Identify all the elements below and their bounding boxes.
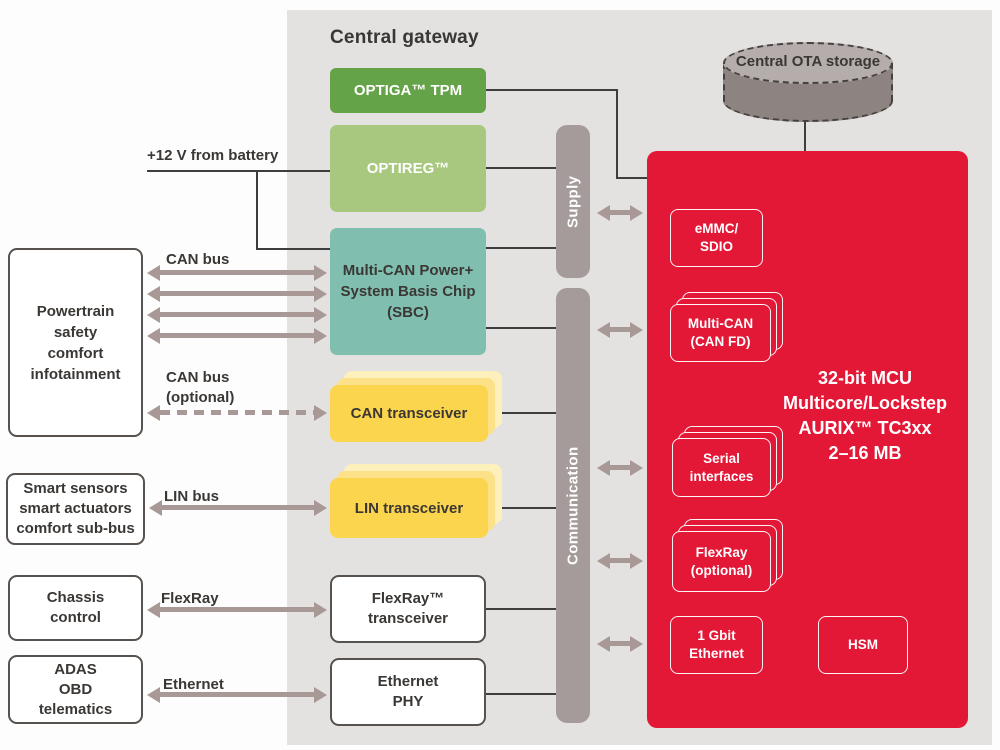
adas-node: ADAS OBD telematics (8, 655, 143, 724)
optireg-label: OPTIREG™ (367, 159, 450, 179)
serial-interfaces-label: Serial interfaces (690, 450, 754, 486)
central-ota-storage: Central OTA storage (723, 42, 893, 122)
chassis-label: Chassis control (47, 588, 105, 628)
connector-optiga-v (616, 89, 618, 179)
hsm-label: HSM (848, 636, 878, 654)
can-bus-arrow-2 (160, 291, 314, 296)
multi-can-label: Multi-CAN (CAN FD) (688, 315, 753, 351)
can-bus-optional-label: CAN bus (optional) (166, 368, 234, 408)
connector-battery-v (256, 170, 258, 250)
connector-battery-h (147, 170, 330, 172)
ethernet-phy-node: Ethernet PHY (330, 658, 486, 726)
powertrain-label: Powertrain safety comfort infotainment (31, 301, 121, 385)
can-bus-label: CAN bus (166, 250, 229, 270)
connector-sbc-communication (486, 327, 556, 329)
flexray-bus-label: FlexRay (161, 589, 219, 609)
battery-label: +12 V from battery (147, 146, 278, 166)
connector-optiga-mcu (616, 177, 647, 179)
sensors-label: Smart sensors smart actuators comfort su… (16, 479, 134, 539)
lin-bus-arrow (162, 505, 314, 510)
connector-optiga-h1 (486, 89, 618, 91)
optireg-node: OPTIREG™ (330, 125, 486, 212)
connector-storage-mcu (804, 120, 806, 151)
sbc-node: Multi-CAN Power+ System Basis Chip (SBC) (330, 228, 486, 355)
flexray-transceiver-node: FlexRay™ transceiver (330, 575, 486, 643)
lin-bus-label: LIN bus (164, 487, 219, 507)
optiga-tpm-label: OPTIGA™ TPM (354, 81, 462, 101)
multi-can-module: Multi-CAN (CAN FD) (670, 304, 771, 362)
mcu-title: 32-bit MCU Multicore/Lockstep AURIX™ TC3… (762, 366, 968, 466)
hsm-module: HSM (818, 616, 908, 674)
flexray-optional-label: FlexRay (optional) (691, 544, 752, 580)
ethernet-phy-label: Ethernet PHY (378, 672, 439, 712)
supply-mcu-arrow (610, 210, 630, 215)
ota-storage-label: Central OTA storage (723, 53, 893, 70)
supply-rail: Supply (556, 125, 590, 278)
emmc-sdio-module: eMMC/ SDIO (670, 209, 763, 267)
comm-mcu-arrow-serial (610, 465, 630, 470)
adas-label: ADAS OBD telematics (39, 660, 112, 720)
diagram-title: Central gateway (330, 27, 479, 49)
lin-transceiver-node: LIN transceiver (330, 478, 488, 538)
supply-rail-label: Supply (565, 175, 582, 227)
ethernet-bus-arrow (160, 692, 314, 697)
gbit-ethernet-module: 1 Gbit Ethernet (670, 616, 763, 674)
powertrain-node: Powertrain safety comfort infotainment (8, 248, 143, 437)
serial-interfaces-module: Serial interfaces (672, 438, 771, 497)
comm-mcu-arrow-ethernet (610, 641, 630, 646)
can-transceiver-node: CAN transceiver (330, 385, 488, 442)
sensors-node: Smart sensors smart actuators comfort su… (6, 473, 145, 545)
flexray-transceiver-label: FlexRay™ transceiver (368, 589, 448, 629)
connector-optireg-supply (486, 167, 556, 169)
emmc-sdio-label: eMMC/ SDIO (695, 220, 739, 256)
can-bus-arrow-3 (160, 312, 314, 317)
chassis-node: Chassis control (8, 575, 143, 641)
connector-sbc-supply (486, 247, 556, 249)
comm-mcu-arrow-multican (610, 327, 630, 332)
optiga-tpm-node: OPTIGA™ TPM (330, 68, 486, 113)
diagram-canvas: Central gateway Powertrain safety comfor… (0, 0, 1000, 750)
flexray-bus-arrow (160, 607, 314, 612)
gbit-ethernet-label: 1 Gbit Ethernet (689, 627, 744, 663)
lin-transceiver-label: LIN transceiver (355, 500, 463, 517)
connector-flexray-communication (486, 608, 556, 610)
communication-rail-label: Communication (565, 446, 582, 565)
sbc-label: Multi-CAN Power+ System Basis Chip (SBC) (340, 260, 475, 323)
flexray-optional-module: FlexRay (optional) (672, 531, 771, 592)
can-bus-optional-arrow (160, 410, 314, 415)
communication-rail: Communication (556, 288, 590, 723)
connector-battery-sbc (256, 248, 330, 250)
connector-ethernet-communication (486, 693, 556, 695)
can-transceiver-label: CAN transceiver (351, 405, 468, 422)
comm-mcu-arrow-flexray (610, 558, 630, 563)
can-bus-arrow-1 (160, 270, 314, 275)
can-bus-arrow-4 (160, 333, 314, 338)
